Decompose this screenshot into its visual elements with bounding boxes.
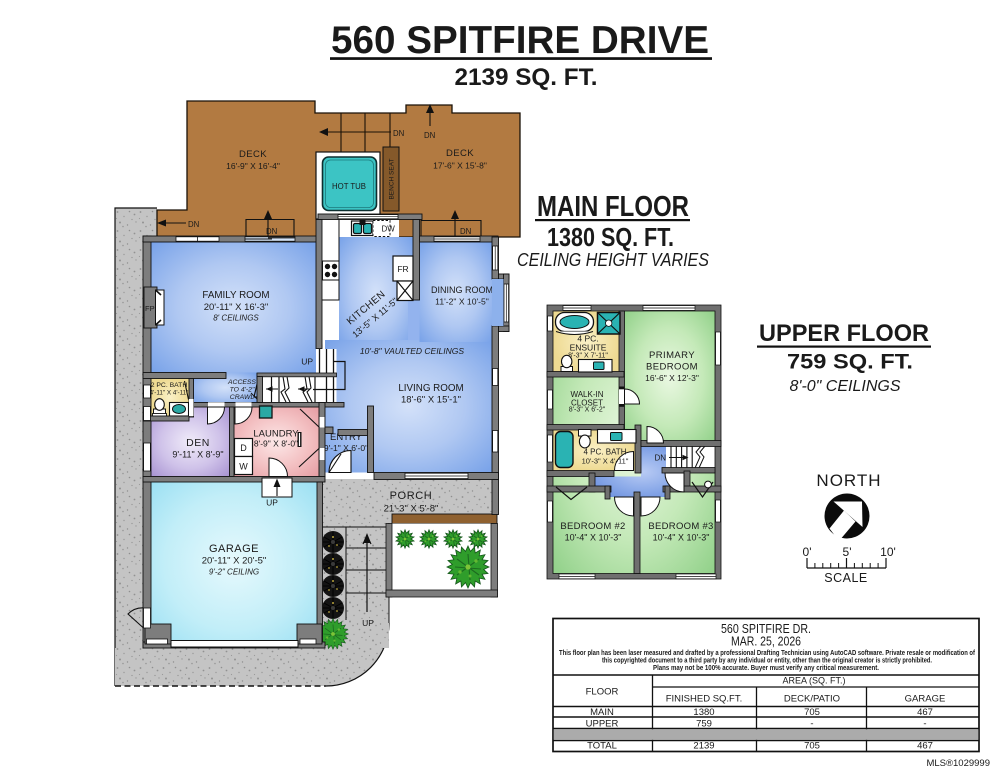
svg-text:0': 0' bbox=[803, 545, 812, 559]
svg-text:CEILING HEIGHT VARIES: CEILING HEIGHT VARIES bbox=[517, 250, 709, 270]
svg-text:FP: FP bbox=[145, 304, 155, 313]
svg-text:ACCESS: ACCESS bbox=[227, 379, 256, 386]
svg-text:MAIN FLOOR: MAIN FLOOR bbox=[537, 191, 689, 223]
svg-text:LIVING ROOM: LIVING ROOM bbox=[398, 383, 463, 394]
svg-text:18'-6" X 15'-1": 18'-6" X 15'-1" bbox=[401, 395, 461, 406]
svg-text:GARAGE: GARAGE bbox=[209, 543, 259, 555]
svg-text:DN: DN bbox=[654, 454, 666, 463]
svg-text:705: 705 bbox=[804, 707, 820, 718]
svg-text:2 PC. BATH: 2 PC. BATH bbox=[151, 382, 188, 389]
svg-text:BEDROOM: BEDROOM bbox=[646, 362, 698, 373]
svg-text:2139 SQ. FT.: 2139 SQ. FT. bbox=[455, 64, 598, 91]
svg-text:DECK: DECK bbox=[239, 149, 267, 160]
svg-text:UPPER FLOOR: UPPER FLOOR bbox=[759, 320, 929, 347]
svg-text:SCALE: SCALE bbox=[824, 571, 868, 585]
svg-text:MAIN: MAIN bbox=[590, 707, 614, 718]
svg-text:TOTAL: TOTAL bbox=[587, 741, 617, 752]
svg-text:FINISHED SQ.FT.: FINISHED SQ.FT. bbox=[666, 694, 743, 705]
svg-text:9'-2" CEILING: 9'-2" CEILING bbox=[209, 568, 259, 577]
svg-text:DN: DN bbox=[188, 220, 199, 229]
svg-text:MAR. 25, 2026: MAR. 25, 2026 bbox=[731, 634, 801, 649]
svg-text:16'-9" X 16'-4": 16'-9" X 16'-4" bbox=[226, 161, 280, 171]
svg-text:FLOOR: FLOOR bbox=[586, 687, 619, 698]
svg-text:1380: 1380 bbox=[693, 707, 714, 718]
svg-text:8'-0" CEILINGS: 8'-0" CEILINGS bbox=[790, 378, 901, 395]
svg-text:D: D bbox=[240, 443, 247, 453]
svg-text:2139: 2139 bbox=[693, 741, 714, 752]
svg-text:TO 4'-2": TO 4'-2" bbox=[230, 387, 255, 394]
svg-text:DEN: DEN bbox=[186, 437, 210, 449]
svg-text:PRIMARY: PRIMARY bbox=[649, 350, 695, 361]
svg-text:ENSUITE: ENSUITE bbox=[570, 343, 607, 353]
svg-text:1380 SQ. FT.: 1380 SQ. FT. bbox=[547, 222, 674, 252]
svg-text:NORTH: NORTH bbox=[816, 471, 881, 490]
svg-text:8'-3" X 6'-2": 8'-3" X 6'-2" bbox=[569, 407, 606, 414]
svg-text:-: - bbox=[810, 719, 813, 730]
svg-text:HOT TUB: HOT TUB bbox=[332, 182, 366, 191]
svg-text:11'-2" X 10'-5": 11'-2" X 10'-5" bbox=[435, 297, 489, 307]
svg-text:10'-3" X 4'-11": 10'-3" X 4'-11" bbox=[582, 457, 629, 466]
svg-text:10'-4" X 10'-3": 10'-4" X 10'-3" bbox=[653, 533, 710, 543]
svg-text:GARAGE: GARAGE bbox=[905, 694, 946, 705]
svg-text:10'-4" X 10'-3": 10'-4" X 10'-3" bbox=[565, 533, 622, 543]
svg-text:AREA (SQ. FT.): AREA (SQ. FT.) bbox=[782, 676, 845, 686]
svg-text:21'-3" X 5'-8": 21'-3" X 5'-8" bbox=[384, 504, 439, 515]
svg-text:8'-3" X 7'-11": 8'-3" X 7'-11" bbox=[568, 353, 608, 360]
svg-text:8' CEILINGS: 8' CEILINGS bbox=[213, 314, 259, 323]
svg-text:8'-9" X 8'-0": 8'-9" X 8'-0" bbox=[254, 439, 298, 449]
svg-text:DECK: DECK bbox=[446, 148, 474, 159]
svg-text:PORCH: PORCH bbox=[390, 490, 433, 502]
svg-text:DINING ROOM: DINING ROOM bbox=[431, 285, 493, 295]
svg-text:560 SPITFIRE DRIVE: 560 SPITFIRE DRIVE bbox=[331, 19, 709, 62]
svg-text:467: 467 bbox=[917, 707, 933, 718]
svg-text:16'-6" X 12'-3": 16'-6" X 12'-3" bbox=[645, 373, 699, 383]
svg-text:BENCH SEAT: BENCH SEAT bbox=[389, 158, 396, 199]
svg-text:BEDROOM #2: BEDROOM #2 bbox=[560, 521, 625, 532]
svg-text:-: - bbox=[923, 719, 926, 730]
svg-text:10'-8" VAULTED CEILINGS: 10'-8" VAULTED CEILINGS bbox=[360, 346, 464, 356]
svg-text:DECK/PATIO: DECK/PATIO bbox=[784, 694, 840, 705]
svg-text:9'-11" X 8'-9": 9'-11" X 8'-9" bbox=[172, 450, 223, 460]
svg-text:20'-11" X 20'-5": 20'-11" X 20'-5" bbox=[202, 556, 267, 567]
svg-text:FAMILY ROOM: FAMILY ROOM bbox=[202, 290, 269, 301]
svg-text:DN: DN bbox=[424, 131, 435, 140]
svg-text:CRAWL: CRAWL bbox=[230, 394, 255, 401]
svg-text:MLS®1029999: MLS®1029999 bbox=[926, 758, 990, 768]
svg-text:DN: DN bbox=[460, 227, 471, 236]
svg-text:DW: DW bbox=[382, 225, 396, 234]
svg-text:W: W bbox=[239, 462, 248, 472]
svg-text:BEDROOM #3: BEDROOM #3 bbox=[648, 521, 713, 532]
svg-text:759 SQ. FT.: 759 SQ. FT. bbox=[787, 350, 913, 374]
svg-text:UP: UP bbox=[266, 498, 278, 508]
svg-text:UPPER: UPPER bbox=[586, 719, 619, 730]
svg-text:4'-11" X 4'-11": 4'-11" X 4'-11" bbox=[150, 390, 189, 397]
svg-text:UP: UP bbox=[301, 357, 313, 367]
svg-text:4 PC. BATH: 4 PC. BATH bbox=[584, 448, 627, 457]
svg-text:DN: DN bbox=[393, 129, 404, 138]
svg-text:10': 10' bbox=[880, 545, 896, 559]
svg-text:467: 467 bbox=[917, 741, 933, 752]
svg-text:17'-6" X 15'-8": 17'-6" X 15'-8" bbox=[433, 161, 487, 171]
svg-text:759: 759 bbox=[696, 719, 712, 730]
svg-text:5': 5' bbox=[843, 545, 852, 559]
svg-text:FR: FR bbox=[397, 264, 408, 274]
svg-text:705: 705 bbox=[804, 741, 820, 752]
svg-text:20'-11" X 16'-3": 20'-11" X 16'-3" bbox=[204, 302, 269, 313]
svg-text:UP: UP bbox=[362, 618, 374, 628]
svg-text:Plans may not be 100% accurate: Plans may not be 100% accurate. Buyer mu… bbox=[653, 663, 879, 672]
svg-text:DN: DN bbox=[266, 227, 277, 236]
